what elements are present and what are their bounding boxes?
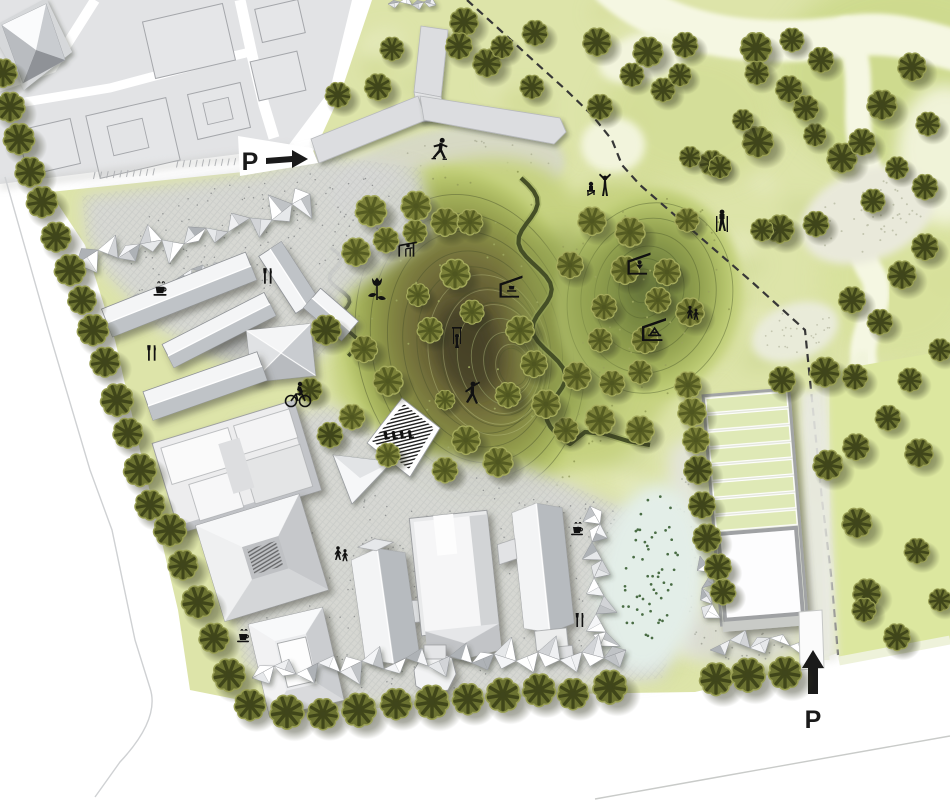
svg-text:P: P — [805, 706, 822, 734]
svg-text:P: P — [242, 148, 259, 176]
